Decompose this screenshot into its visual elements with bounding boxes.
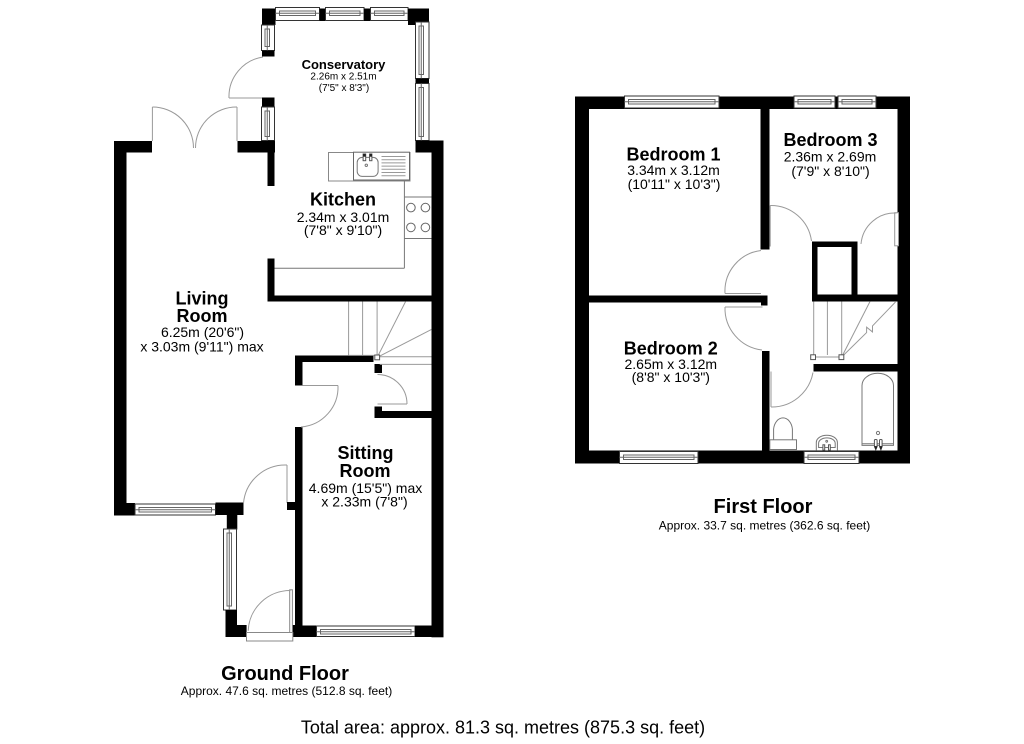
svg-text:(8'8" x 10'3"): (8'8" x 10'3") bbox=[632, 369, 710, 385]
svg-text:2.26m x 2.51m: 2.26m x 2.51m bbox=[310, 72, 376, 83]
svg-text:Bedroom 3: Bedroom 3 bbox=[783, 130, 877, 150]
svg-text:(7'9" x 8'10"): (7'9" x 8'10") bbox=[791, 163, 869, 179]
svg-text:(7'5" x 8'3"): (7'5" x 8'3") bbox=[319, 83, 369, 94]
svg-text:Approx. 47.6 sq. metres (512.8: Approx. 47.6 sq. metres (512.8 sq. feet) bbox=[181, 684, 392, 698]
svg-text:Room: Room bbox=[340, 461, 391, 481]
svg-text:(10'11" x 10'3"): (10'11" x 10'3") bbox=[628, 176, 721, 192]
svg-text:Approx. 33.7 sq. metres (362.6: Approx. 33.7 sq. metres (362.6 sq. feet) bbox=[659, 518, 870, 532]
svg-text:Conservatory: Conservatory bbox=[302, 57, 387, 72]
svg-text:Kitchen: Kitchen bbox=[310, 189, 376, 209]
svg-text:Total area: approx. 81.3 sq. m: Total area: approx. 81.3 sq. metres (875… bbox=[301, 718, 705, 738]
svg-text:Ground Floor: Ground Floor bbox=[221, 663, 349, 685]
svg-text:First Floor: First Floor bbox=[714, 496, 813, 518]
svg-text:x 3.03m (9'11") max: x 3.03m (9'11") max bbox=[140, 338, 263, 354]
svg-text:(7'8" x 9'10"): (7'8" x 9'10") bbox=[304, 222, 382, 238]
svg-text:x 2.33m (7'8"): x 2.33m (7'8") bbox=[321, 494, 407, 510]
svg-text:Sitting: Sitting bbox=[338, 443, 394, 463]
